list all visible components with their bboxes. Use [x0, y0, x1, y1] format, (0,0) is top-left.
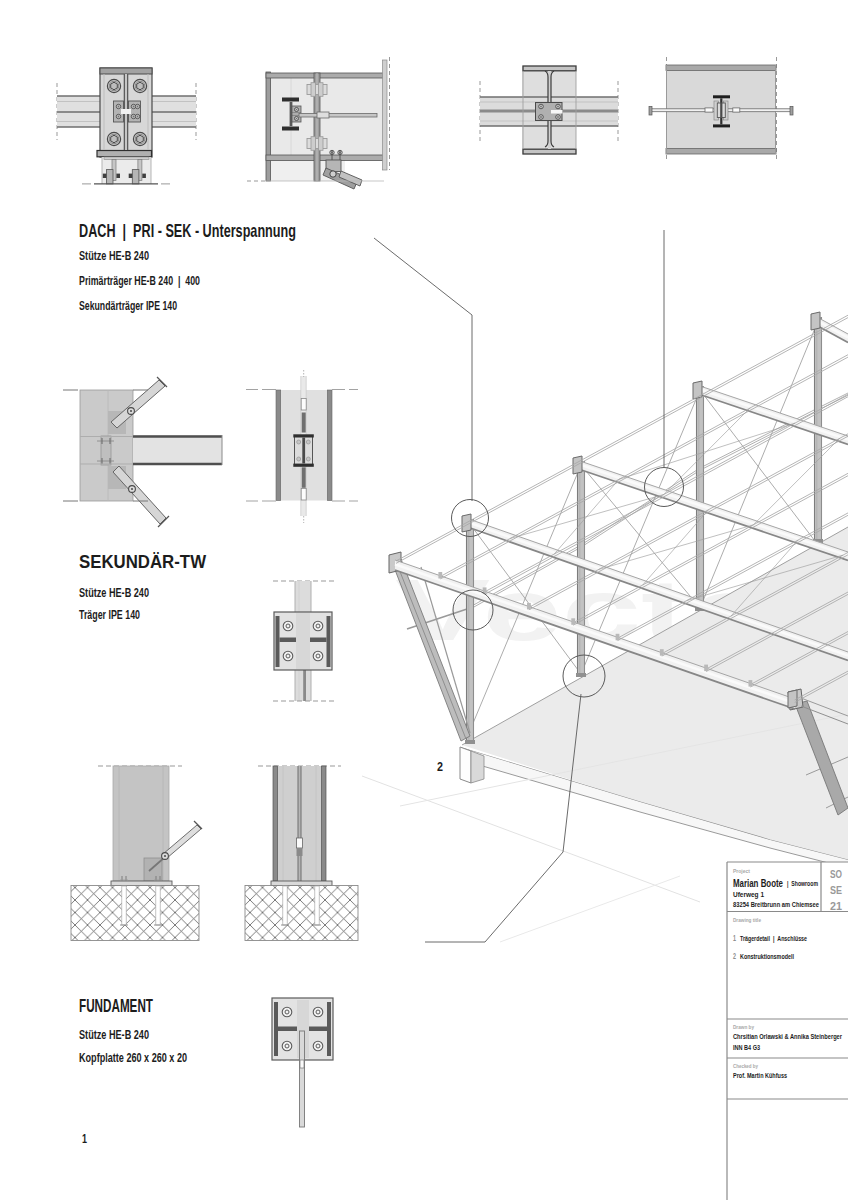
svg-text:Drawn by: Drawn by — [733, 1024, 755, 1030]
svg-text:21: 21 — [830, 901, 842, 912]
svg-text:83254 Breitbrunn am Chiemsee: 83254 Breitbrunn am Chiemsee — [733, 900, 819, 909]
svg-text:DACH | PRI - SEK - Unterspan: DACH | PRI - SEK - Unterspannung — [79, 220, 296, 241]
svg-text:INN B4 G3: INN B4 G3 — [733, 1043, 760, 1052]
svg-text:Stütze HE-B 240: Stütze HE-B 240 — [79, 249, 149, 263]
svg-text:Träger IPE 140: Träger IPE 140 — [79, 608, 140, 622]
svg-text:Marian Boote: Marian Boote — [733, 878, 783, 889]
svg-text:Uferweg 1: Uferweg 1 — [733, 890, 764, 899]
svg-text:Konstruktionsmodell: Konstruktionsmodell — [740, 952, 794, 961]
svg-text:SO: SO — [830, 869, 842, 880]
svg-text:1: 1 — [733, 933, 736, 943]
svg-text:| Showroom: | Showroom — [787, 880, 818, 888]
svg-text:2: 2 — [733, 951, 736, 961]
svg-text:Project: Project — [733, 868, 750, 874]
svg-text:Prof. Martin Kühfuss: Prof. Martin Kühfuss — [733, 1071, 787, 1080]
svg-text:SE: SE — [830, 885, 842, 896]
svg-text:Trägerdetail | Anschlüsse: Trägerdetail | Anschlüsse — [740, 934, 807, 943]
svg-text:FUNDAMENT: FUNDAMENT — [79, 995, 153, 1016]
svg-text:SEKUNDÄR-TW: SEKUNDÄR-TW — [79, 551, 206, 572]
svg-text:Checked by: Checked by — [733, 1063, 758, 1069]
svg-text:Stütze HE-B 240: Stütze HE-B 240 — [79, 1028, 149, 1042]
svg-text:2: 2 — [437, 760, 443, 774]
svg-text:Primärträger HE-B 240 | 400: Primärträger HE-B 240 | 400 — [79, 274, 200, 288]
svg-text:Sekundärträger IPE 140: Sekundärträger IPE 140 — [79, 299, 177, 313]
svg-text:Drawing title: Drawing title — [733, 917, 762, 923]
svg-text:1: 1 — [82, 1132, 87, 1146]
svg-text:Chrsitian Orlawski & Annika St: Chrsitian Orlawski & Annika Steinberger — [733, 1032, 842, 1041]
svg-text:Stütze HE-B 240: Stütze HE-B 240 — [79, 586, 149, 600]
svg-text:Kopfplatte 260 x 260 x 20: Kopfplatte 260 x 260 x 20 — [79, 1051, 187, 1065]
